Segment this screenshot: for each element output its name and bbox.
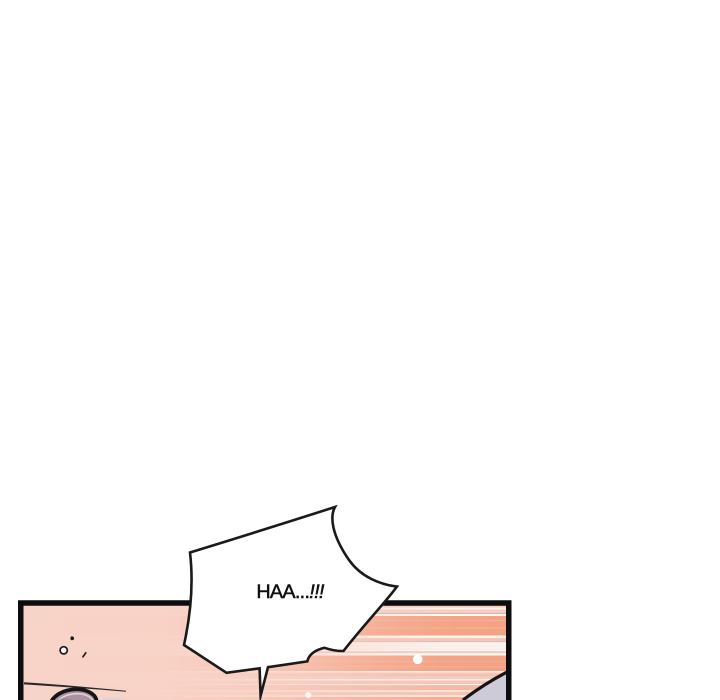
svg-text:HAA...!!!: HAA...!!!: [256, 581, 325, 603]
